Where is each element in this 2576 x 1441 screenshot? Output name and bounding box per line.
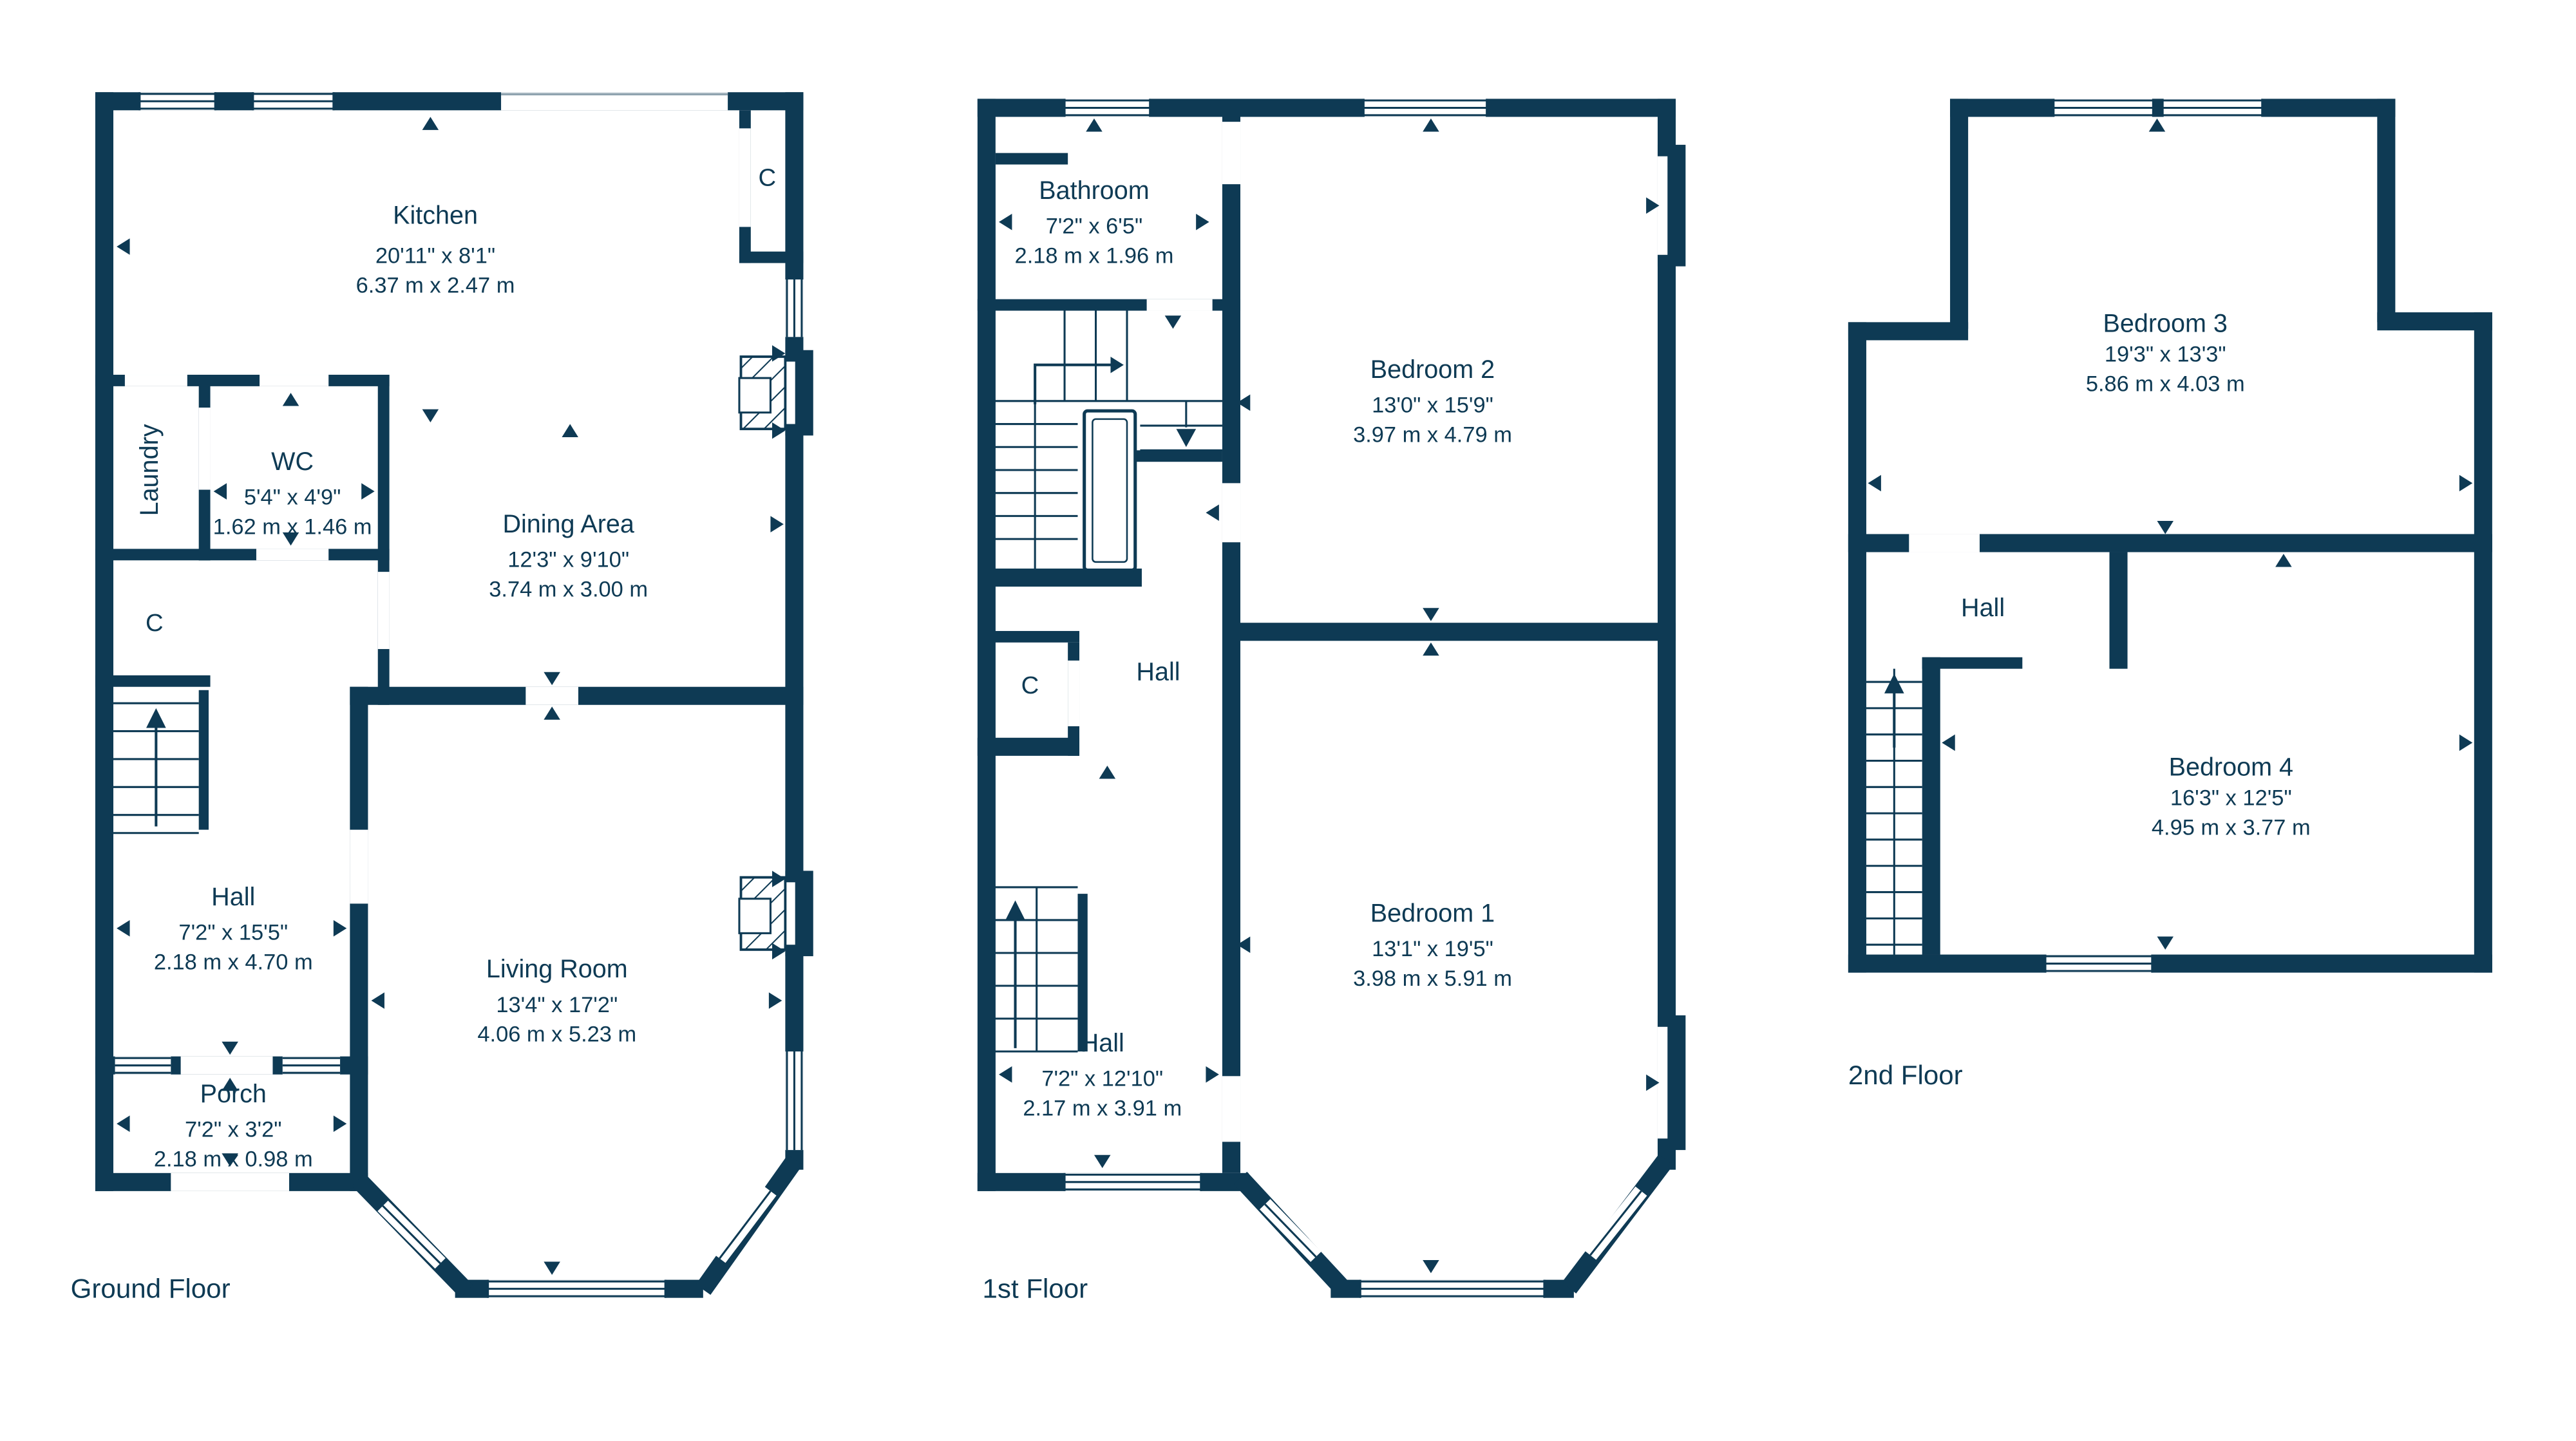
room-label-living: Living Room — [486, 955, 628, 983]
room-dims-bathroom-imperial: 7'2" x 6'5" — [1046, 214, 1143, 239]
room-dims-hall-first-imperial: 7'2" x 12'10" — [1041, 1067, 1163, 1091]
room-dims-bedroom3-imperial: 19'3" x 13'3" — [2105, 343, 2226, 367]
room-dims-bedroom1-metric: 3.98 m x 5.91 m — [1353, 966, 1512, 991]
window — [140, 92, 215, 110]
window — [1363, 99, 1486, 117]
room-dims-bedroom4-imperial: 16'3" x 12'5" — [2170, 786, 2292, 810]
room-dims-living-metric: 4.06 m x 5.23 m — [477, 1022, 636, 1047]
room-dims-bedroom1-imperial: 13'1" x 19'5" — [1372, 937, 1493, 961]
floor-label-ground: Ground Floor — [71, 1274, 231, 1304]
room-label-hall-ground: Hall — [211, 883, 255, 911]
wide-opening — [501, 92, 728, 110]
window — [785, 279, 803, 337]
floorplan-drawing: Kitchen 20'11" x 8'1" 6.37 m x 2.47 m C … — [0, 0, 2576, 1441]
window — [1065, 1173, 1201, 1191]
floor-label-first: 1st Floor — [983, 1274, 1088, 1304]
room-label-kitchen: Kitchen — [393, 201, 478, 229]
room-dims-bathroom-metric: 2.18 m x 1.96 m — [1015, 244, 1174, 268]
window — [1065, 99, 1150, 117]
window — [115, 1057, 171, 1075]
fireplace-dining — [739, 357, 785, 429]
room-label-hall-first-lower: Hall — [1081, 1029, 1124, 1057]
room-label-porch: Porch — [200, 1080, 267, 1108]
room-dims-bedroom2-metric: 3.97 m x 4.79 m — [1353, 423, 1512, 447]
window — [283, 1057, 340, 1075]
room-dims-wc-imperial: 5'4" x 4'9" — [244, 485, 341, 510]
second-floor-door-openings — [1909, 534, 1980, 552]
room-dims-living-imperial: 13'4" x 17'2" — [496, 993, 618, 1017]
room-dims-porch-imperial: 7'2" x 3'2" — [185, 1118, 282, 1142]
room-label-bedroom2: Bedroom 2 — [1370, 355, 1495, 384]
closet-label-first: C — [1021, 672, 1039, 699]
room-label-bedroom3: Bedroom 3 — [2103, 310, 2228, 338]
room-label-hall-second: Hall — [1961, 594, 2005, 622]
room-dims-bedroom3-metric: 5.86 m x 4.03 m — [2086, 372, 2245, 397]
fireplace-living — [739, 878, 785, 950]
room-label-bedroom1: Bedroom 1 — [1370, 899, 1495, 927]
room-dims-hall-first-metric: 2.17 m x 3.91 m — [1023, 1097, 1182, 1121]
closet-label-top-right: C — [759, 164, 777, 192]
window — [785, 1051, 803, 1150]
room-dims-kitchen-metric: 6.37 m x 2.47 m — [356, 273, 515, 297]
room-label-dining: Dining Area — [502, 510, 634, 538]
window — [2054, 99, 2262, 117]
floor-label-second: 2nd Floor — [1848, 1060, 1963, 1090]
room-label-laundry: Laundry — [135, 424, 164, 516]
room-label-bedroom4: Bedroom 4 — [2169, 753, 2293, 781]
window — [2045, 955, 2152, 973]
room-dims-dining-imperial: 12'3" x 9'10" — [507, 547, 629, 572]
room-dims-kitchen-imperial: 20'11" x 8'1" — [375, 244, 495, 268]
room-dims-bedroom2-imperial: 13'0" x 15'9" — [1372, 393, 1493, 418]
room-label-bathroom: Bathroom — [1039, 176, 1149, 205]
window — [253, 92, 334, 110]
room-label-hall-first-upper: Hall — [1136, 658, 1180, 686]
room-dims-wc-metric: 1.62 m x 1.46 m — [213, 514, 372, 539]
room-label-wc: WC — [271, 447, 314, 476]
room-dims-hall-ground-metric: 2.18 m x 4.70 m — [154, 950, 313, 974]
floorplan-page: Kitchen 20'11" x 8'1" 6.37 m x 2.47 m C … — [0, 0, 2576, 1441]
room-dims-bedroom4-metric: 4.95 m x 3.77 m — [2152, 815, 2311, 840]
closet-label-left: C — [146, 609, 164, 637]
room-dims-dining-metric: 3.74 m x 3.00 m — [489, 577, 648, 601]
room-dims-porch-metric: 2.18 m x 0.98 m — [154, 1147, 313, 1172]
room-dims-hall-ground-imperial: 7'2" x 15'5" — [178, 921, 288, 945]
